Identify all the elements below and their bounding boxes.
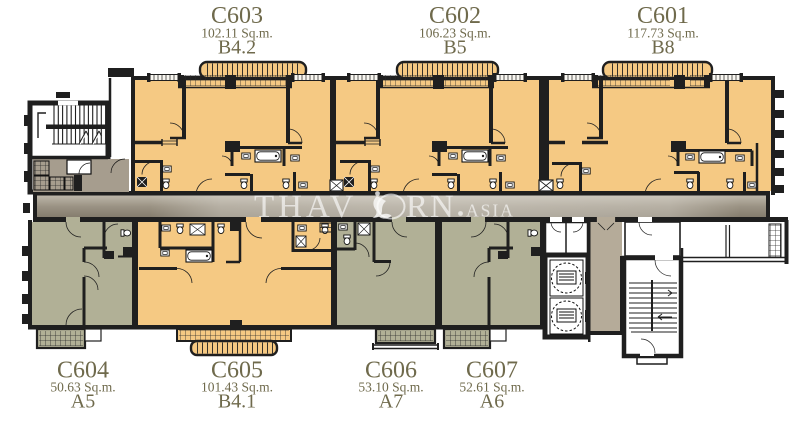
svg-text:A5: A5 <box>71 391 95 413</box>
svg-text:ASIA: ASIA <box>466 201 515 221</box>
svg-text:B4.2: B4.2 <box>218 37 256 59</box>
svg-text:THAV: THAV <box>254 189 357 225</box>
svg-text:B4.1: B4.1 <box>218 391 256 413</box>
svg-text:A6: A6 <box>480 391 504 413</box>
svg-text:B5: B5 <box>443 37 466 59</box>
svg-text:RN: RN <box>406 189 456 225</box>
svg-text:A7: A7 <box>379 391 403 413</box>
svg-text:B8: B8 <box>651 37 674 59</box>
